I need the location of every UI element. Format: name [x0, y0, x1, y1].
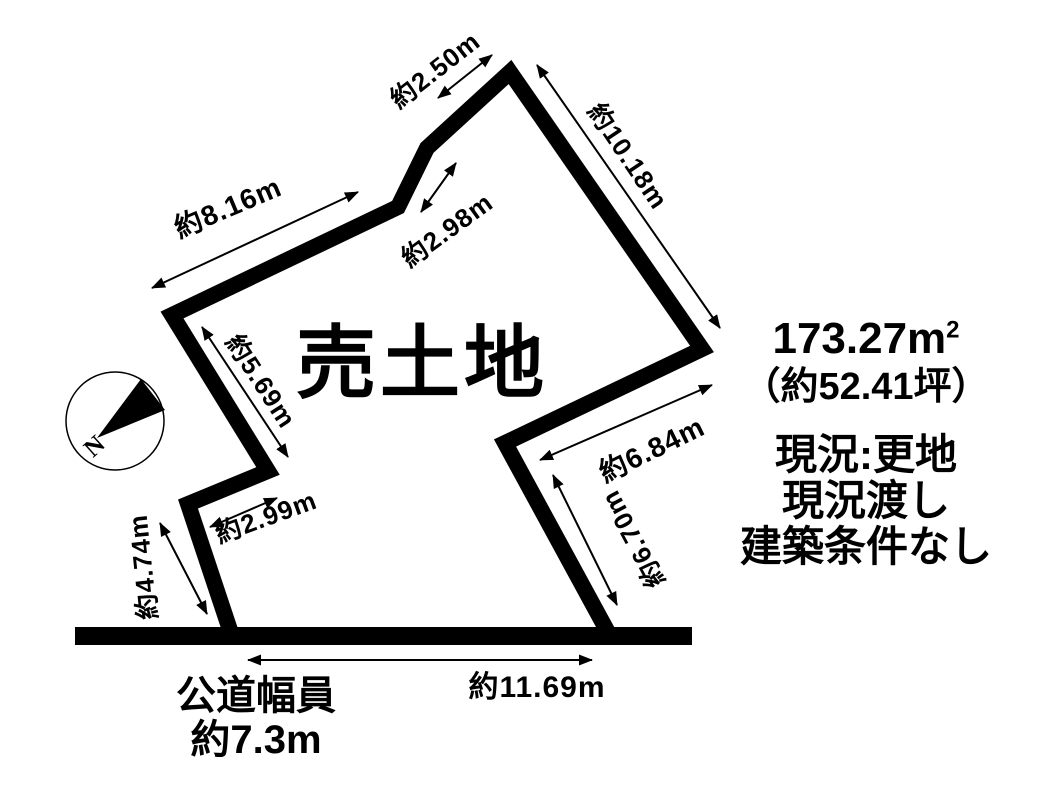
road-width-value: 約7.3m [146, 718, 366, 762]
dim-arrow-right-upper [537, 65, 720, 328]
area-sqm: 173.27m2 [738, 314, 994, 364]
condition-building: 建築条件なし [738, 524, 994, 570]
dim-arrow-top-bend [421, 163, 456, 212]
condition-handover: 現況渡し [738, 478, 994, 524]
plot-title: 売土地 [296, 324, 548, 404]
land-plot-diagram: N 売土地 約2.50m 約10.18m 約8.16m 約2.98m 約5.69… [0, 0, 1046, 792]
road-width-block: 公道幅員 約7.3m [146, 674, 366, 762]
condition-current-state: 現況:更地 [738, 432, 994, 478]
area-sqm-value: 173.27m [772, 314, 946, 363]
area-tsubo: （約52.41坪） [738, 364, 994, 410]
dim-label-frontage: 約11.69m [468, 673, 605, 703]
property-info-block: 173.27m2 （約52.41坪） 現況:更地 現況渡し 建築条件なし [738, 314, 994, 570]
area-sqm-superscript: 2 [946, 316, 959, 343]
road-width-title: 公道幅員 [146, 674, 366, 718]
